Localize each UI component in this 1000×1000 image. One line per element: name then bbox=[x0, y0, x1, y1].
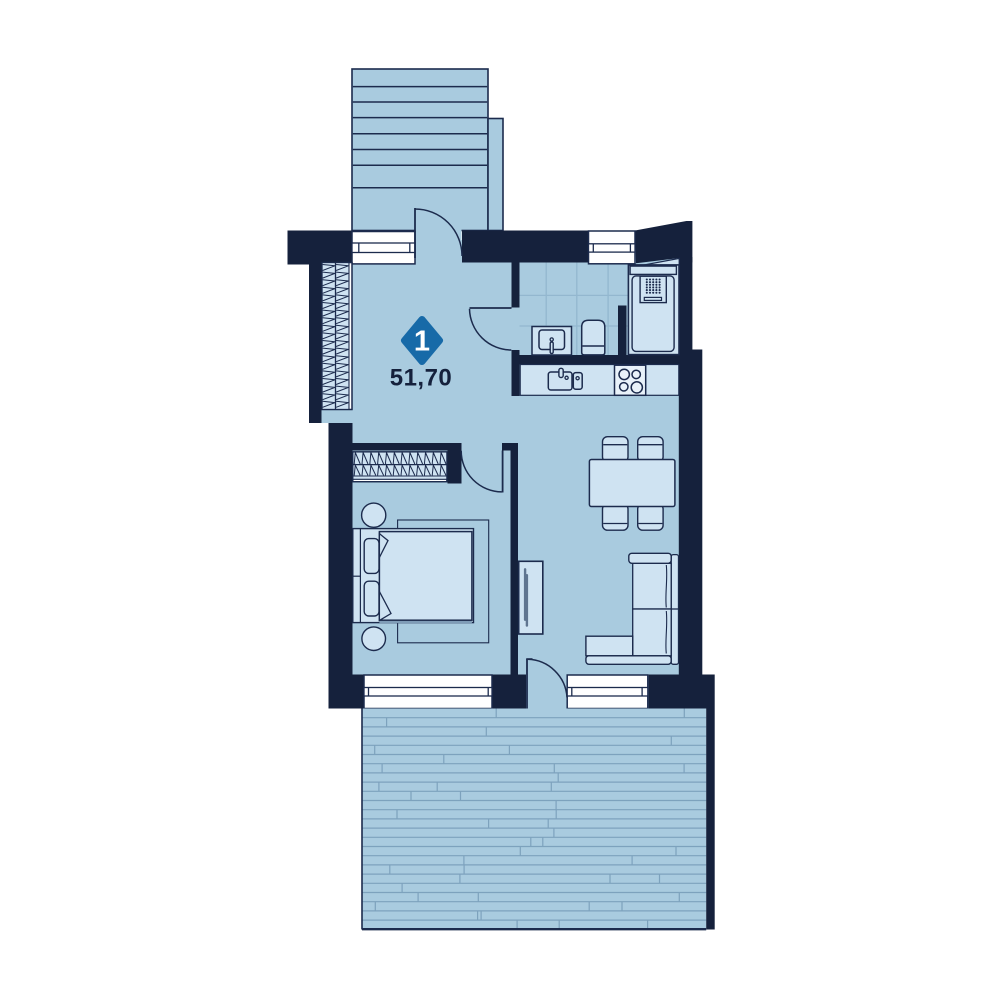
svg-text:1: 1 bbox=[414, 326, 430, 358]
svg-text:51,70: 51,70 bbox=[390, 365, 453, 392]
